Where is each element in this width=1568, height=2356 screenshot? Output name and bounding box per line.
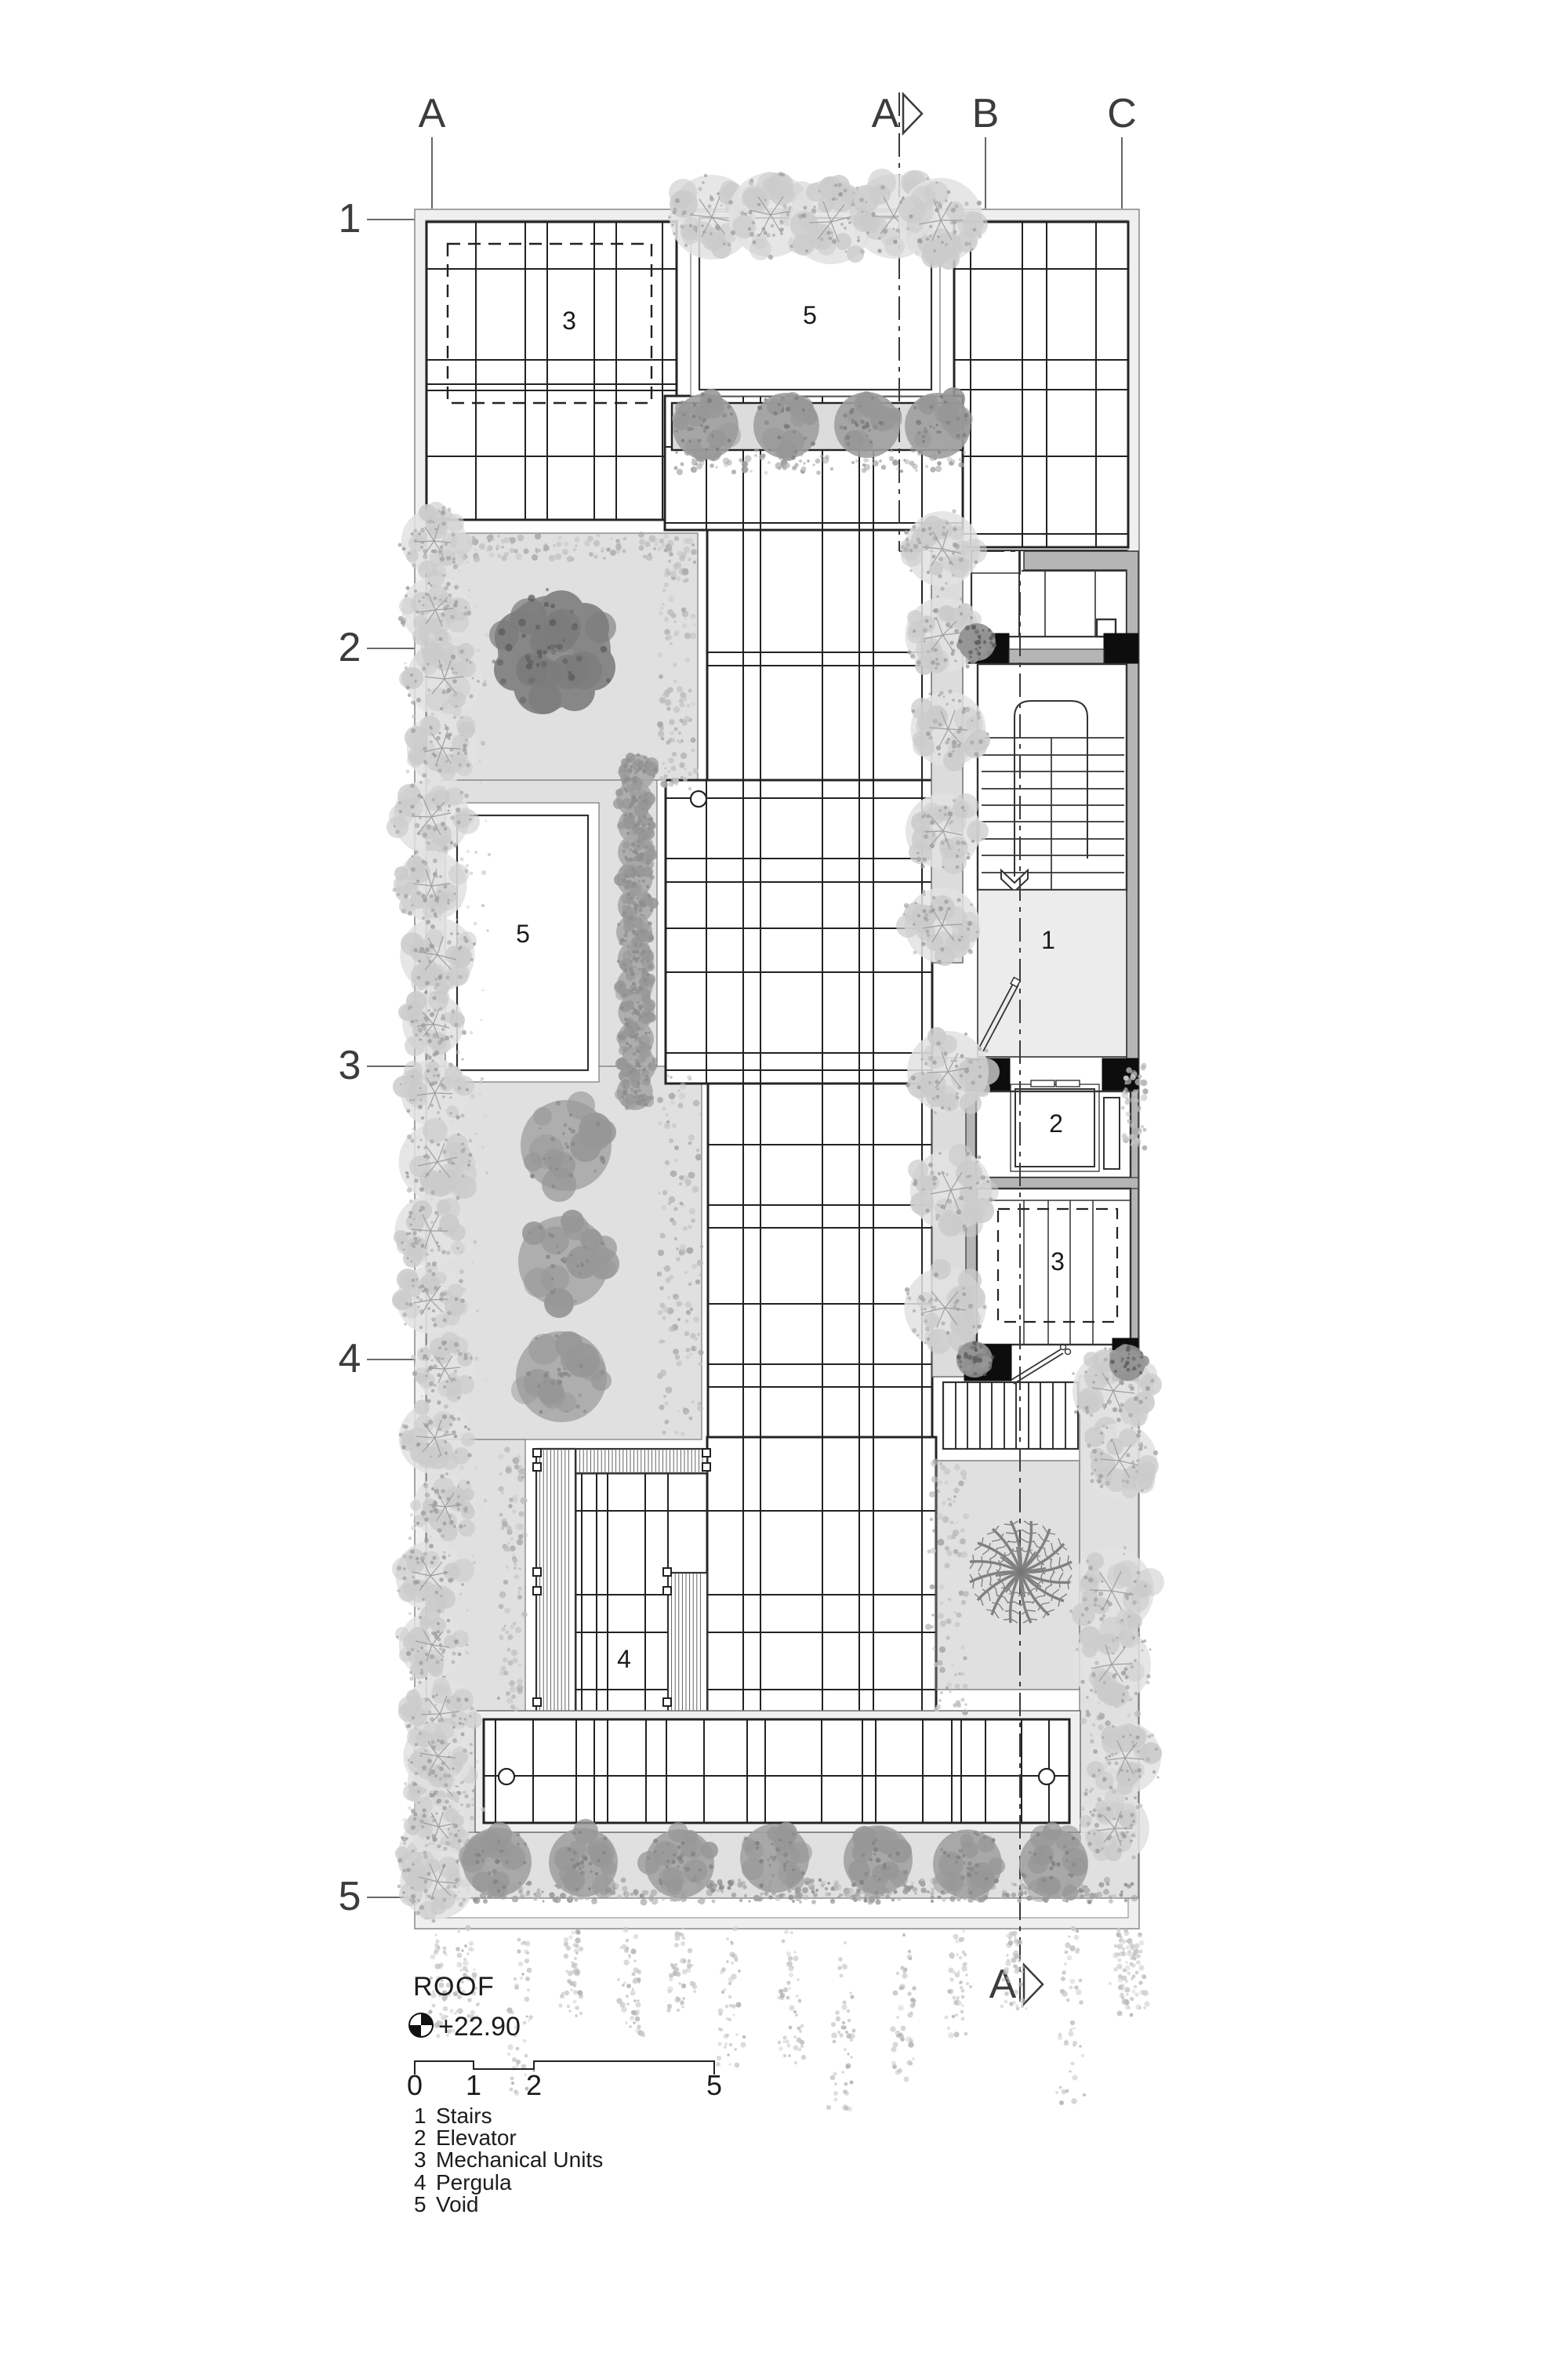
svg-text:B: B (972, 91, 1000, 136)
svg-text:1: 1 (1041, 926, 1055, 954)
svg-text:2: 2 (339, 625, 361, 670)
svg-text:5: 5 (803, 301, 817, 329)
svg-text:3: 3 (339, 1043, 361, 1088)
svg-text:2: 2 (1049, 1109, 1063, 1138)
svg-text:1: 1 (339, 196, 361, 241)
svg-text:3: 3 (562, 307, 576, 335)
svg-text:4: 4 (617, 1645, 631, 1673)
svg-text:5: 5 (339, 1874, 361, 1919)
svg-text:4: 4 (339, 1336, 361, 1381)
svg-text:A: A (872, 91, 899, 136)
svg-text:A: A (989, 1962, 1017, 2007)
svg-text:A: A (419, 91, 446, 136)
svg-text:C: C (1107, 91, 1137, 136)
svg-text:5: 5 (516, 920, 530, 948)
svg-text:3: 3 (1051, 1247, 1065, 1276)
